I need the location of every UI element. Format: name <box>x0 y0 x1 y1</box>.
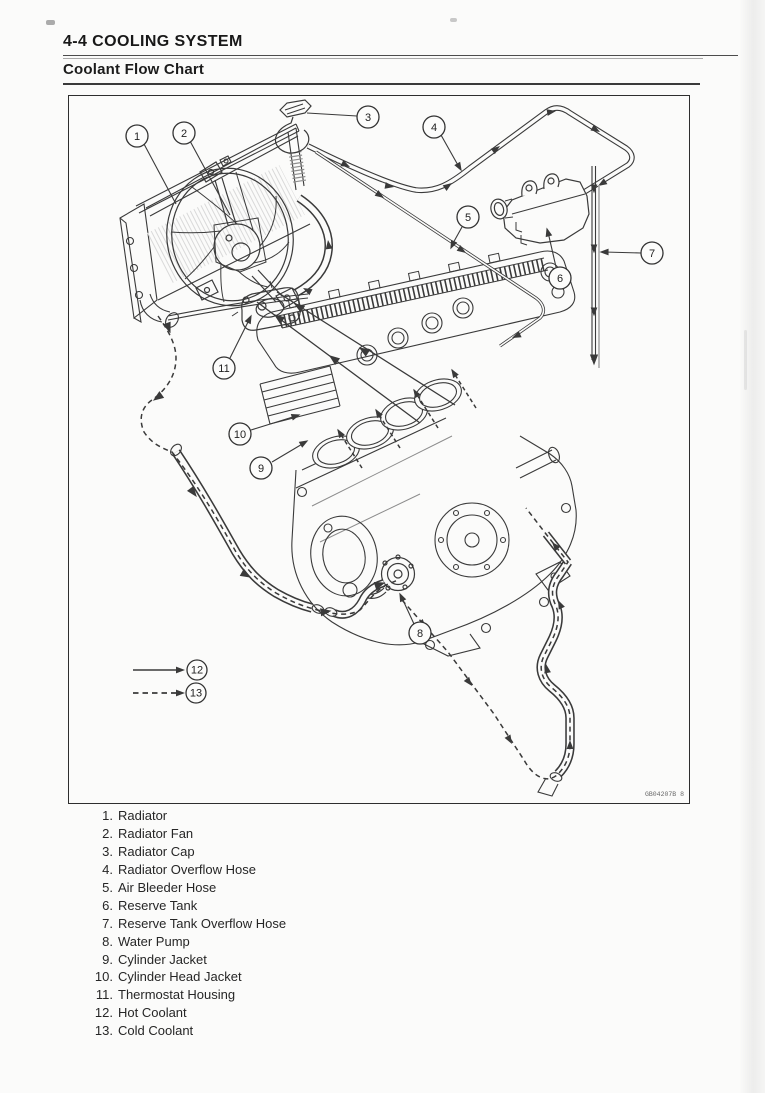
radiator <box>120 124 310 330</box>
callout-9: 9 <box>250 457 272 479</box>
list-item: 4.Radiator Overflow Hose <box>86 861 286 879</box>
subsection-title: Coolant Flow Chart <box>63 61 204 78</box>
cold-coolant-flow-right <box>402 508 573 796</box>
callout-5: 5 <box>457 206 479 228</box>
svg-text:2: 2 <box>181 127 187 139</box>
svg-text:12: 12 <box>190 664 202 676</box>
subsection-rule <box>63 83 700 85</box>
list-item: 13.Cold Coolant <box>86 1022 286 1040</box>
svg-text:9: 9 <box>258 462 264 474</box>
callout-13: 13 <box>186 683 206 703</box>
figure-code: GB04207B 8 <box>645 791 684 798</box>
callout-12: 12 <box>187 660 207 680</box>
svg-text:5: 5 <box>465 211 471 223</box>
svg-text:8: 8 <box>417 627 423 639</box>
title-rule-shadow <box>63 58 703 59</box>
svg-text:7: 7 <box>649 247 655 259</box>
item-label: Air Bleeder Hose <box>118 880 216 895</box>
item-label: Cylinder Jacket <box>118 952 207 967</box>
cylinder-bores <box>308 373 465 473</box>
svg-text:3: 3 <box>365 111 371 123</box>
page-title: 4-4 COOLING SYSTEM <box>63 33 243 51</box>
scan-speck <box>450 18 457 22</box>
item-label: Radiator Cap <box>118 844 195 859</box>
svg-text:6: 6 <box>557 272 563 284</box>
reserve-tank-overflow-hose <box>590 166 598 368</box>
item-number: 11. <box>86 987 113 1002</box>
title-rule <box>63 55 738 56</box>
list-item: 8.Water Pump <box>86 932 286 950</box>
reserve-tank <box>488 173 588 244</box>
item-number: 1. <box>86 808 113 823</box>
svg-text:1: 1 <box>134 130 140 142</box>
cold-coolant-legend: 13 <box>133 683 206 703</box>
list-item: 10.Cylinder Head Jacket <box>86 968 286 986</box>
item-number: 8. <box>86 934 113 949</box>
cylinder-head-jacket-fins <box>260 366 340 424</box>
parts-list: 1.Radiator 2.Radiator Fan 3.Radiator Cap… <box>86 807 286 1040</box>
item-label: Reserve Tank Overflow Hose <box>118 916 286 931</box>
item-number: 13. <box>86 1023 113 1038</box>
lower-radiator-hose <box>168 442 384 618</box>
item-label: Radiator <box>118 808 167 823</box>
list-item: 3.Radiator Cap <box>86 843 286 861</box>
list-item: 1.Radiator <box>86 807 286 825</box>
scan-speck <box>744 330 747 390</box>
callout-4: 4 <box>423 116 445 138</box>
list-item: 7.Reserve Tank Overflow Hose <box>86 914 286 932</box>
callout-1: 1 <box>126 125 148 147</box>
item-label: Hot Coolant <box>118 1005 187 1020</box>
svg-text:4: 4 <box>431 121 437 133</box>
list-item: 9.Cylinder Jacket <box>86 950 286 968</box>
item-label: Reserve Tank <box>118 898 197 913</box>
scan-speck <box>46 20 55 25</box>
item-number: 7. <box>86 916 113 931</box>
callout-8: 8 <box>409 622 431 644</box>
upper-radiator-hose <box>296 198 332 295</box>
item-label: Thermostat Housing <box>118 987 235 1002</box>
item-number: 12. <box>86 1005 113 1020</box>
list-item: 2.Radiator Fan <box>86 825 286 843</box>
item-label: Cold Coolant <box>118 1023 193 1038</box>
item-number: 9. <box>86 952 113 967</box>
item-number: 2. <box>86 826 113 841</box>
list-item: 11.Thermostat Housing <box>86 986 286 1004</box>
item-label: Radiator Fan <box>118 826 193 841</box>
coolant-flow-diagram: 1 2 3 4 5 6 7 8 9 10 11 12 13 GB04207B 8 <box>68 95 690 804</box>
callout-7: 7 <box>641 242 663 264</box>
callout-3: 3 <box>357 106 379 128</box>
svg-text:10: 10 <box>233 428 245 440</box>
callout-6: 6 <box>549 267 571 289</box>
callout-10: 10 <box>229 423 251 445</box>
scan-edge-shading <box>739 0 765 1093</box>
item-number: 3. <box>86 844 113 859</box>
list-item: 12.Hot Coolant <box>86 1004 286 1022</box>
item-label: Cylinder Head Jacket <box>118 969 242 984</box>
item-number: 10. <box>86 969 113 984</box>
item-number: 5. <box>86 880 113 895</box>
item-label: Radiator Overflow Hose <box>118 862 256 877</box>
manual-page: { "page": { "section_title": "4-4 COOLIN… <box>0 0 765 1093</box>
engine <box>256 251 575 656</box>
item-number: 6. <box>86 898 113 913</box>
callout-11: 11 <box>213 357 235 379</box>
svg-text:11: 11 <box>218 362 229 374</box>
callout-2: 2 <box>173 122 195 144</box>
flow-legend: 12 13 <box>133 660 207 703</box>
hot-coolant-legend: 12 <box>133 660 207 680</box>
item-number: 4. <box>86 862 113 877</box>
list-item: 6.Reserve Tank <box>86 896 286 914</box>
list-item: 5.Air Bleeder Hose <box>86 879 286 897</box>
item-label: Water Pump <box>118 934 190 949</box>
svg-text:13: 13 <box>189 687 201 699</box>
